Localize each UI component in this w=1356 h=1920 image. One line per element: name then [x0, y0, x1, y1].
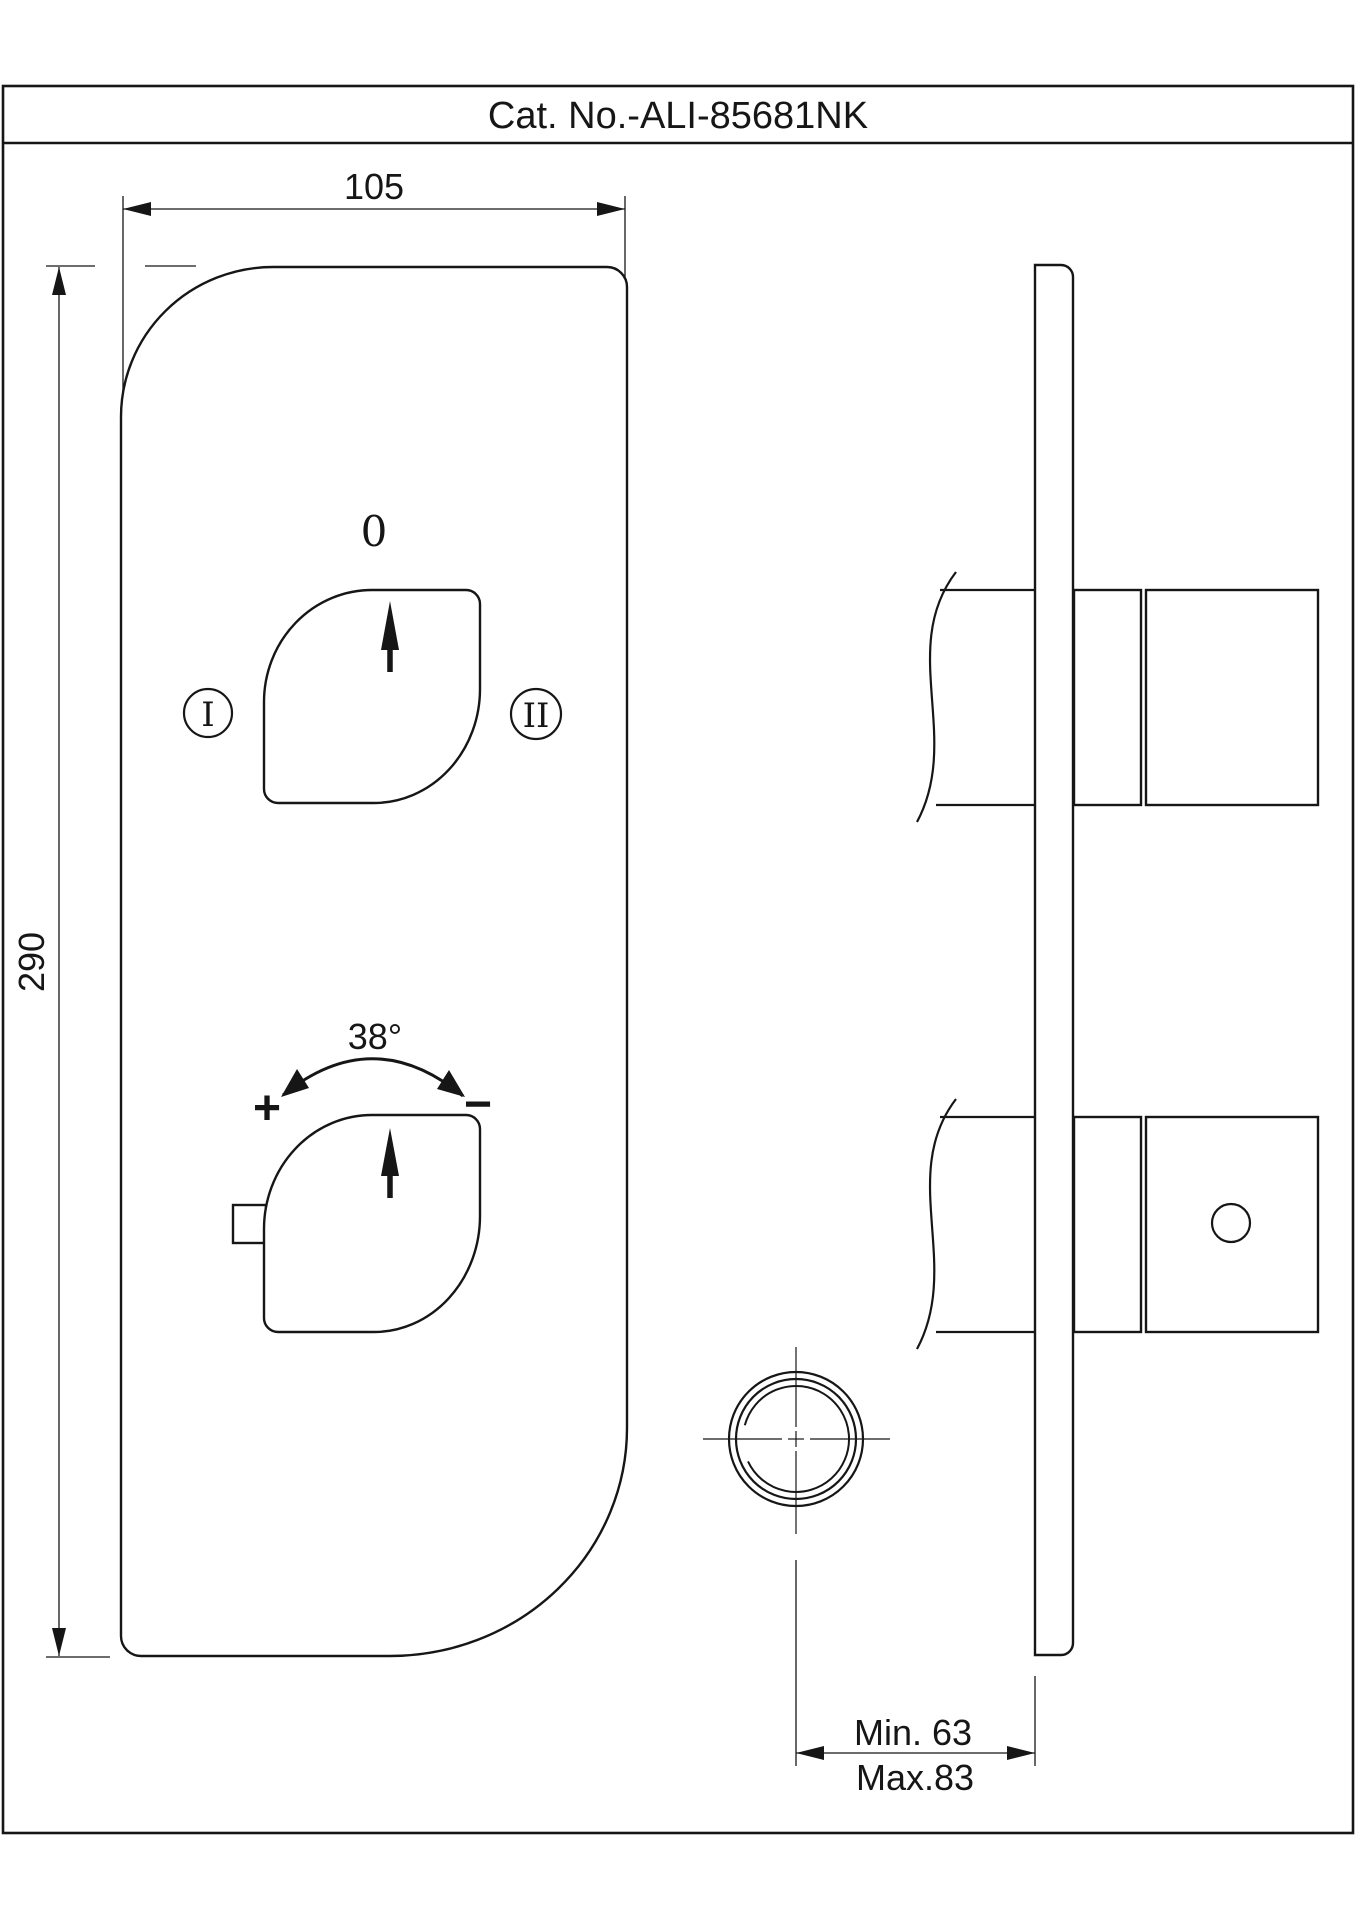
height-dim-label: 290 [11, 932, 52, 992]
min-depth-label: Min. 63 [854, 1712, 972, 1753]
drawing-sheet: Cat. No.-ALI-85681NK 105 290 0 I II [0, 0, 1356, 1920]
wall-plate-side-bar [1035, 265, 1073, 1655]
lower-sleeve [1074, 1117, 1141, 1332]
safety-stop-tab [233, 1205, 266, 1243]
front-view: 0 I II 38° + − [121, 267, 627, 1656]
lower-handle-side [1146, 1117, 1318, 1332]
outlet-two-label: II [523, 696, 550, 736]
diverter-off-label: 0 [361, 507, 388, 556]
wall-plate-outline [121, 267, 627, 1656]
width-dim-label: 105 [344, 166, 404, 207]
hotter-label: + [253, 1082, 281, 1135]
temperature-knob-outline [264, 1115, 480, 1332]
rotation-angle-label: 38° [348, 1016, 402, 1057]
diverter-knob-outline [264, 590, 480, 803]
upper-sleeve [1074, 590, 1141, 805]
drawing-title: Cat. No.-ALI-85681NK [488, 95, 868, 137]
max-depth-label: Max.83 [856, 1757, 974, 1798]
upper-handle-side [1146, 590, 1318, 805]
outlet-one-label: I [201, 695, 214, 735]
